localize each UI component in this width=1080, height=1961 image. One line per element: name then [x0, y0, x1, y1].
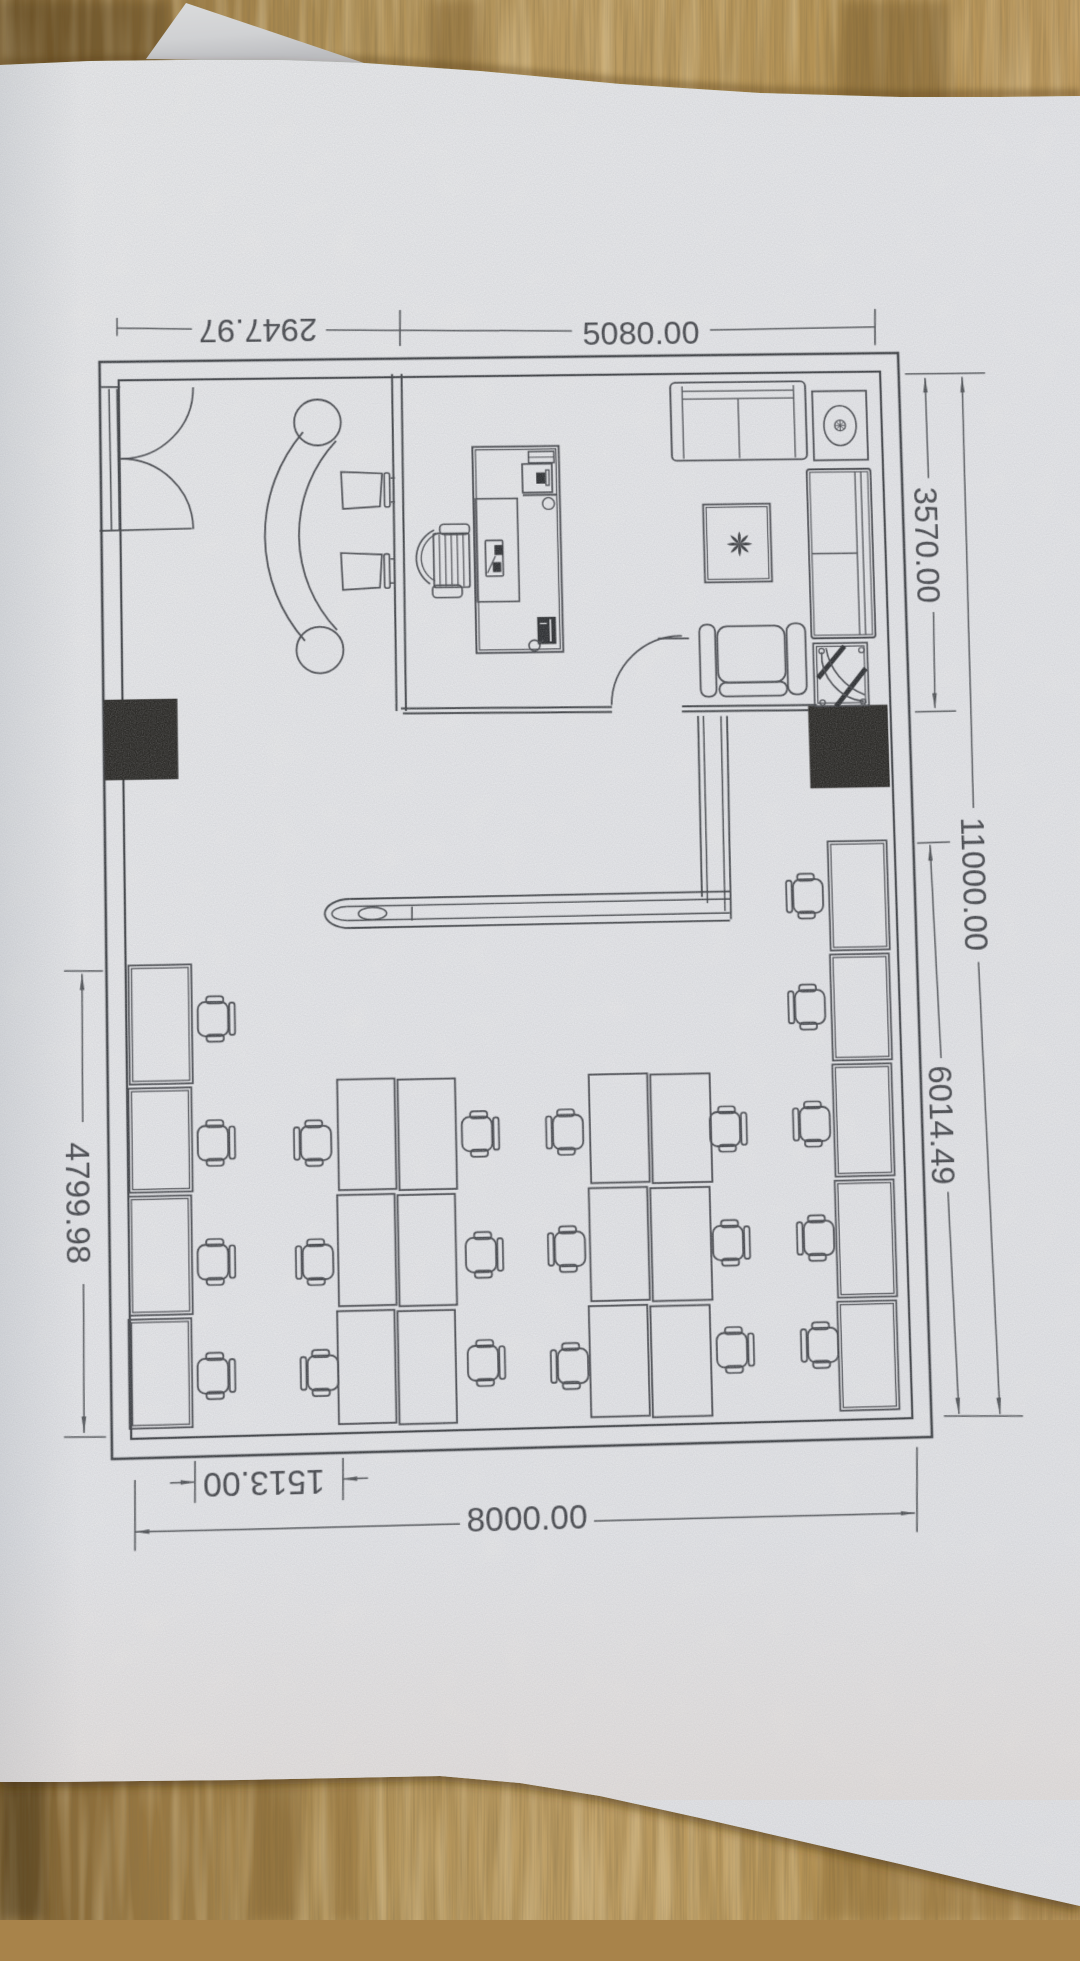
svg-text:6014.49: 6014.49 — [921, 1065, 961, 1185]
svg-text:8000.00: 8000.00 — [466, 1497, 588, 1538]
svg-text:4799.98: 4799.98 — [59, 1142, 98, 1264]
svg-text:5080.00: 5080.00 — [582, 315, 700, 352]
svg-text:3570.00: 3570.00 — [907, 487, 947, 604]
svg-text:11000.00: 11000.00 — [954, 817, 995, 952]
svg-text:1513.00: 1513.00 — [203, 1462, 325, 1503]
svg-text:2947.97: 2947.97 — [199, 311, 318, 348]
